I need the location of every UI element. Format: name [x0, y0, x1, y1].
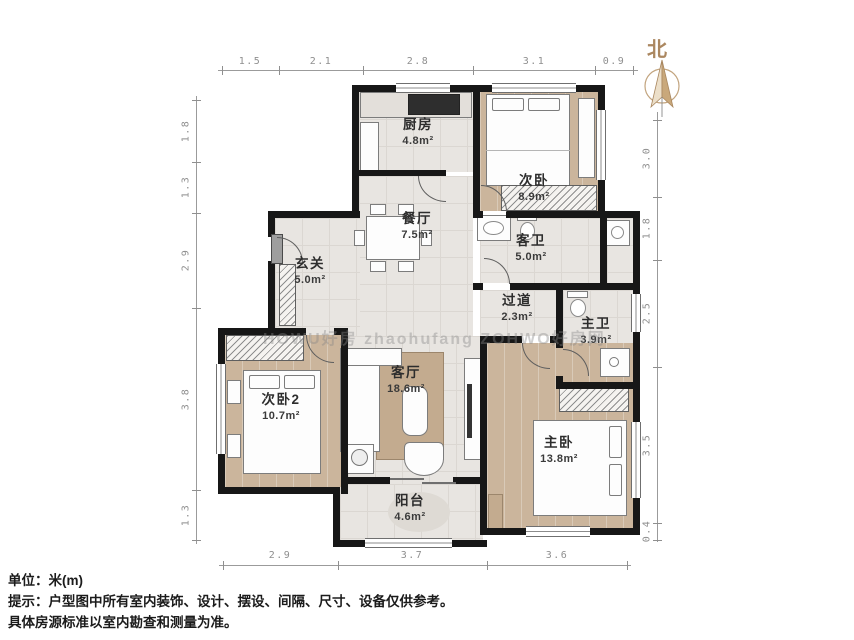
window: [492, 83, 576, 93]
room-label: 客卫 5.0m²: [515, 232, 546, 264]
dimension-tick: [653, 540, 662, 541]
dimension-tick: [192, 213, 201, 214]
room-area: 4.6m²: [394, 510, 425, 524]
sliding-door: [422, 482, 456, 484]
kitchen-cabinet: [360, 122, 379, 172]
washer-drum: [611, 226, 624, 239]
room-label: 玄关 5.0m²: [294, 255, 325, 287]
wall: [506, 211, 605, 218]
dimension-tick: [192, 162, 201, 163]
room-name: 客厅: [387, 364, 425, 382]
dimension-tick: [192, 540, 201, 541]
dining-chair: [370, 261, 386, 272]
window: [631, 422, 641, 498]
wall: [333, 540, 367, 547]
dimension-tick: [633, 66, 634, 75]
shower-head: [609, 357, 619, 367]
room-area: 5.0m²: [294, 273, 325, 287]
room-area: 5.0m²: [515, 250, 546, 264]
dining-chair: [398, 261, 414, 272]
dimension-tick: [192, 308, 201, 309]
floor-plan-page: 厨房 4.8m² 次卧 8.9m² 餐厅 7.5m² 客卫 5.0m² 玄关 5…: [0, 0, 854, 640]
bookshelf: [578, 98, 595, 178]
balcony-window: [365, 538, 452, 548]
window: [526, 526, 590, 537]
room-label: 客厅 18.6m²: [387, 364, 425, 396]
dimension-label: 1.8: [181, 120, 192, 143]
room-name: 主卧: [540, 434, 578, 452]
wall: [473, 211, 483, 218]
blanket-line: [486, 150, 570, 151]
room-label: 次卧 8.9m²: [518, 172, 549, 204]
room-name: 次卧: [518, 172, 549, 190]
dimension-label: 1.3: [181, 176, 192, 199]
sliding-door: [390, 478, 424, 480]
room-area: 13.8m²: [540, 452, 578, 466]
room-area: 4.8m²: [402, 134, 433, 148]
dimension-label: 3.1: [523, 56, 546, 67]
wall: [268, 211, 360, 218]
wall: [600, 211, 607, 290]
dimension-label: 2.5: [642, 302, 653, 325]
dimension-label: 3.6: [546, 550, 569, 561]
dimension-tick: [222, 66, 223, 75]
dimension-tick: [653, 197, 662, 198]
wall: [341, 328, 348, 494]
dresser: [488, 494, 503, 530]
pillow: [609, 426, 622, 458]
dimension-label: 3.8: [181, 388, 192, 411]
room-label: 阳台 4.6m²: [394, 492, 425, 524]
nightstand: [227, 434, 241, 458]
room-name: 玄关: [294, 255, 325, 273]
wall: [480, 528, 528, 535]
dimension-label: 3.7: [401, 550, 424, 561]
wardrobe: [559, 387, 629, 412]
dimension-line-top: [218, 70, 638, 71]
wall: [556, 382, 640, 389]
room-name: 过道: [501, 292, 532, 310]
dimension-tick: [363, 66, 364, 75]
wall: [352, 85, 359, 218]
dimension-tick: [279, 66, 280, 75]
room-label: 厨房 4.8m²: [402, 116, 433, 148]
dining-chair: [370, 204, 386, 215]
tv: [467, 384, 472, 438]
wall: [218, 487, 340, 494]
pillow: [492, 98, 524, 111]
dimension-line-bottom: [219, 565, 631, 566]
dimension-tick: [192, 490, 201, 491]
room-area: 2.3m²: [501, 310, 532, 324]
window: [216, 364, 226, 454]
wall: [268, 261, 275, 335]
room-name: 客卫: [515, 232, 546, 250]
armchair: [404, 442, 444, 476]
sink-basin: [483, 221, 504, 235]
dining-chair: [354, 230, 365, 246]
toilet-tank: [567, 291, 588, 298]
window: [596, 110, 606, 180]
plant: [351, 449, 368, 466]
room-name: 厨房: [402, 116, 433, 134]
dimension-tick: [653, 260, 662, 261]
pillow: [249, 375, 280, 389]
dimension-tick: [338, 561, 339, 570]
window: [396, 83, 450, 93]
room-label: 过道 2.3m²: [501, 292, 532, 324]
dimension-tick: [627, 561, 628, 570]
pillow: [609, 464, 622, 496]
wall: [450, 540, 487, 547]
dimension-label: 1.8: [642, 217, 653, 240]
dimension-tick: [653, 367, 662, 368]
dimension-label: 2.8: [407, 56, 430, 67]
dimension-tick: [487, 561, 488, 570]
dimension-tick: [653, 120, 662, 121]
wall: [480, 336, 487, 535]
room-area: 18.6m²: [387, 382, 425, 396]
room-label: 餐厅 7.5m²: [401, 210, 432, 242]
dimension-label: 1.5: [239, 56, 262, 67]
dimension-tick: [473, 66, 474, 75]
room-name: 阳台: [394, 492, 425, 510]
room-name: 次卧2: [261, 391, 300, 409]
room-area: 7.5m²: [401, 228, 432, 242]
stove: [408, 94, 460, 115]
room-area: 10.7m²: [261, 409, 300, 423]
tip-note-line2: 具体房源标准以室内勘查和测量为准。: [8, 613, 768, 634]
dimension-tick: [223, 561, 224, 570]
pillow: [284, 375, 315, 389]
watermark: HOWU好房 zhaohufang ZOHWO好房网: [263, 325, 643, 349]
wall: [453, 477, 483, 484]
compass-icon: [640, 57, 684, 117]
wall: [510, 283, 640, 290]
pillow: [528, 98, 560, 111]
dimension-label: 2.9: [181, 249, 192, 272]
dimension-label: 1.3: [181, 504, 192, 527]
dimension-label: 0.9: [603, 56, 626, 67]
dimension-tick: [595, 66, 596, 75]
dimension-tick: [653, 523, 662, 524]
dimension-label: 2.9: [269, 550, 292, 561]
dimension-label: 3.0: [642, 147, 653, 170]
dimension-tick: [192, 100, 201, 101]
unit-note: 单位：米(m): [8, 571, 768, 592]
wall: [473, 85, 480, 218]
dimension-line-left: [196, 96, 197, 544]
tip-note-line1: 提示：户型图中所有室内装饰、设计、摆设、间隔、尺寸、设备仅供参考。: [8, 592, 768, 613]
dimension-label: 3.5: [642, 434, 653, 457]
dimension-line-right: [657, 112, 658, 542]
dimension-label: 2.1: [310, 56, 333, 67]
footer-notes: 单位：米(m) 提示：户型图中所有室内装饰、设计、摆设、间隔、尺寸、设备仅供参考…: [8, 571, 768, 634]
nightstand: [227, 380, 241, 404]
wall: [345, 477, 390, 484]
room-area: 8.9m²: [518, 190, 549, 204]
wall: [473, 283, 483, 290]
wall: [333, 487, 340, 547]
room-label: 主卧 13.8m²: [540, 434, 578, 466]
room-label: 次卧2 10.7m²: [261, 391, 300, 423]
room-name: 餐厅: [401, 210, 432, 228]
dimension-label: 0.4: [642, 520, 653, 543]
